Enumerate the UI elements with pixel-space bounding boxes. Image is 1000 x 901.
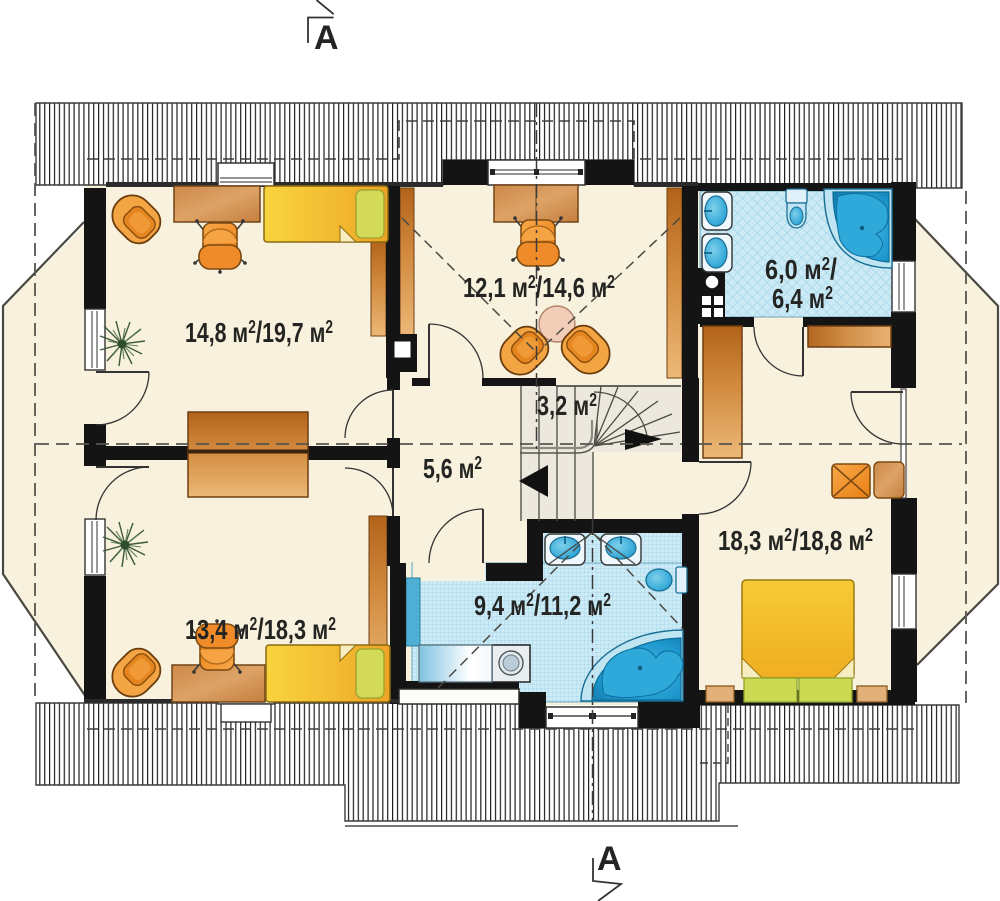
svg-text:14,8 м2/19,7 м2: 14,8 м2/19,7 м2 — [185, 316, 333, 349]
svg-text:A: A — [597, 840, 622, 878]
svg-text:13,4 м2/18,3 м2: 13,4 м2/18,3 м2 — [185, 613, 336, 646]
svg-text:6,4 м2: 6,4 м2 — [772, 283, 833, 314]
svg-text:3,2 м2: 3,2 м2 — [537, 390, 597, 421]
svg-text:12,1 м2/14,6 м2: 12,1 м2/14,6 м2 — [463, 271, 615, 304]
svg-text:A: A — [314, 19, 339, 57]
svg-text:5,6 м2: 5,6 м2 — [423, 453, 482, 484]
svg-text:18,3 м2/18,8 м2: 18,3 м2/18,8 м2 — [718, 524, 873, 557]
svg-text:9,4 м2/11,2 м2: 9,4 м2/11,2 м2 — [474, 589, 611, 622]
